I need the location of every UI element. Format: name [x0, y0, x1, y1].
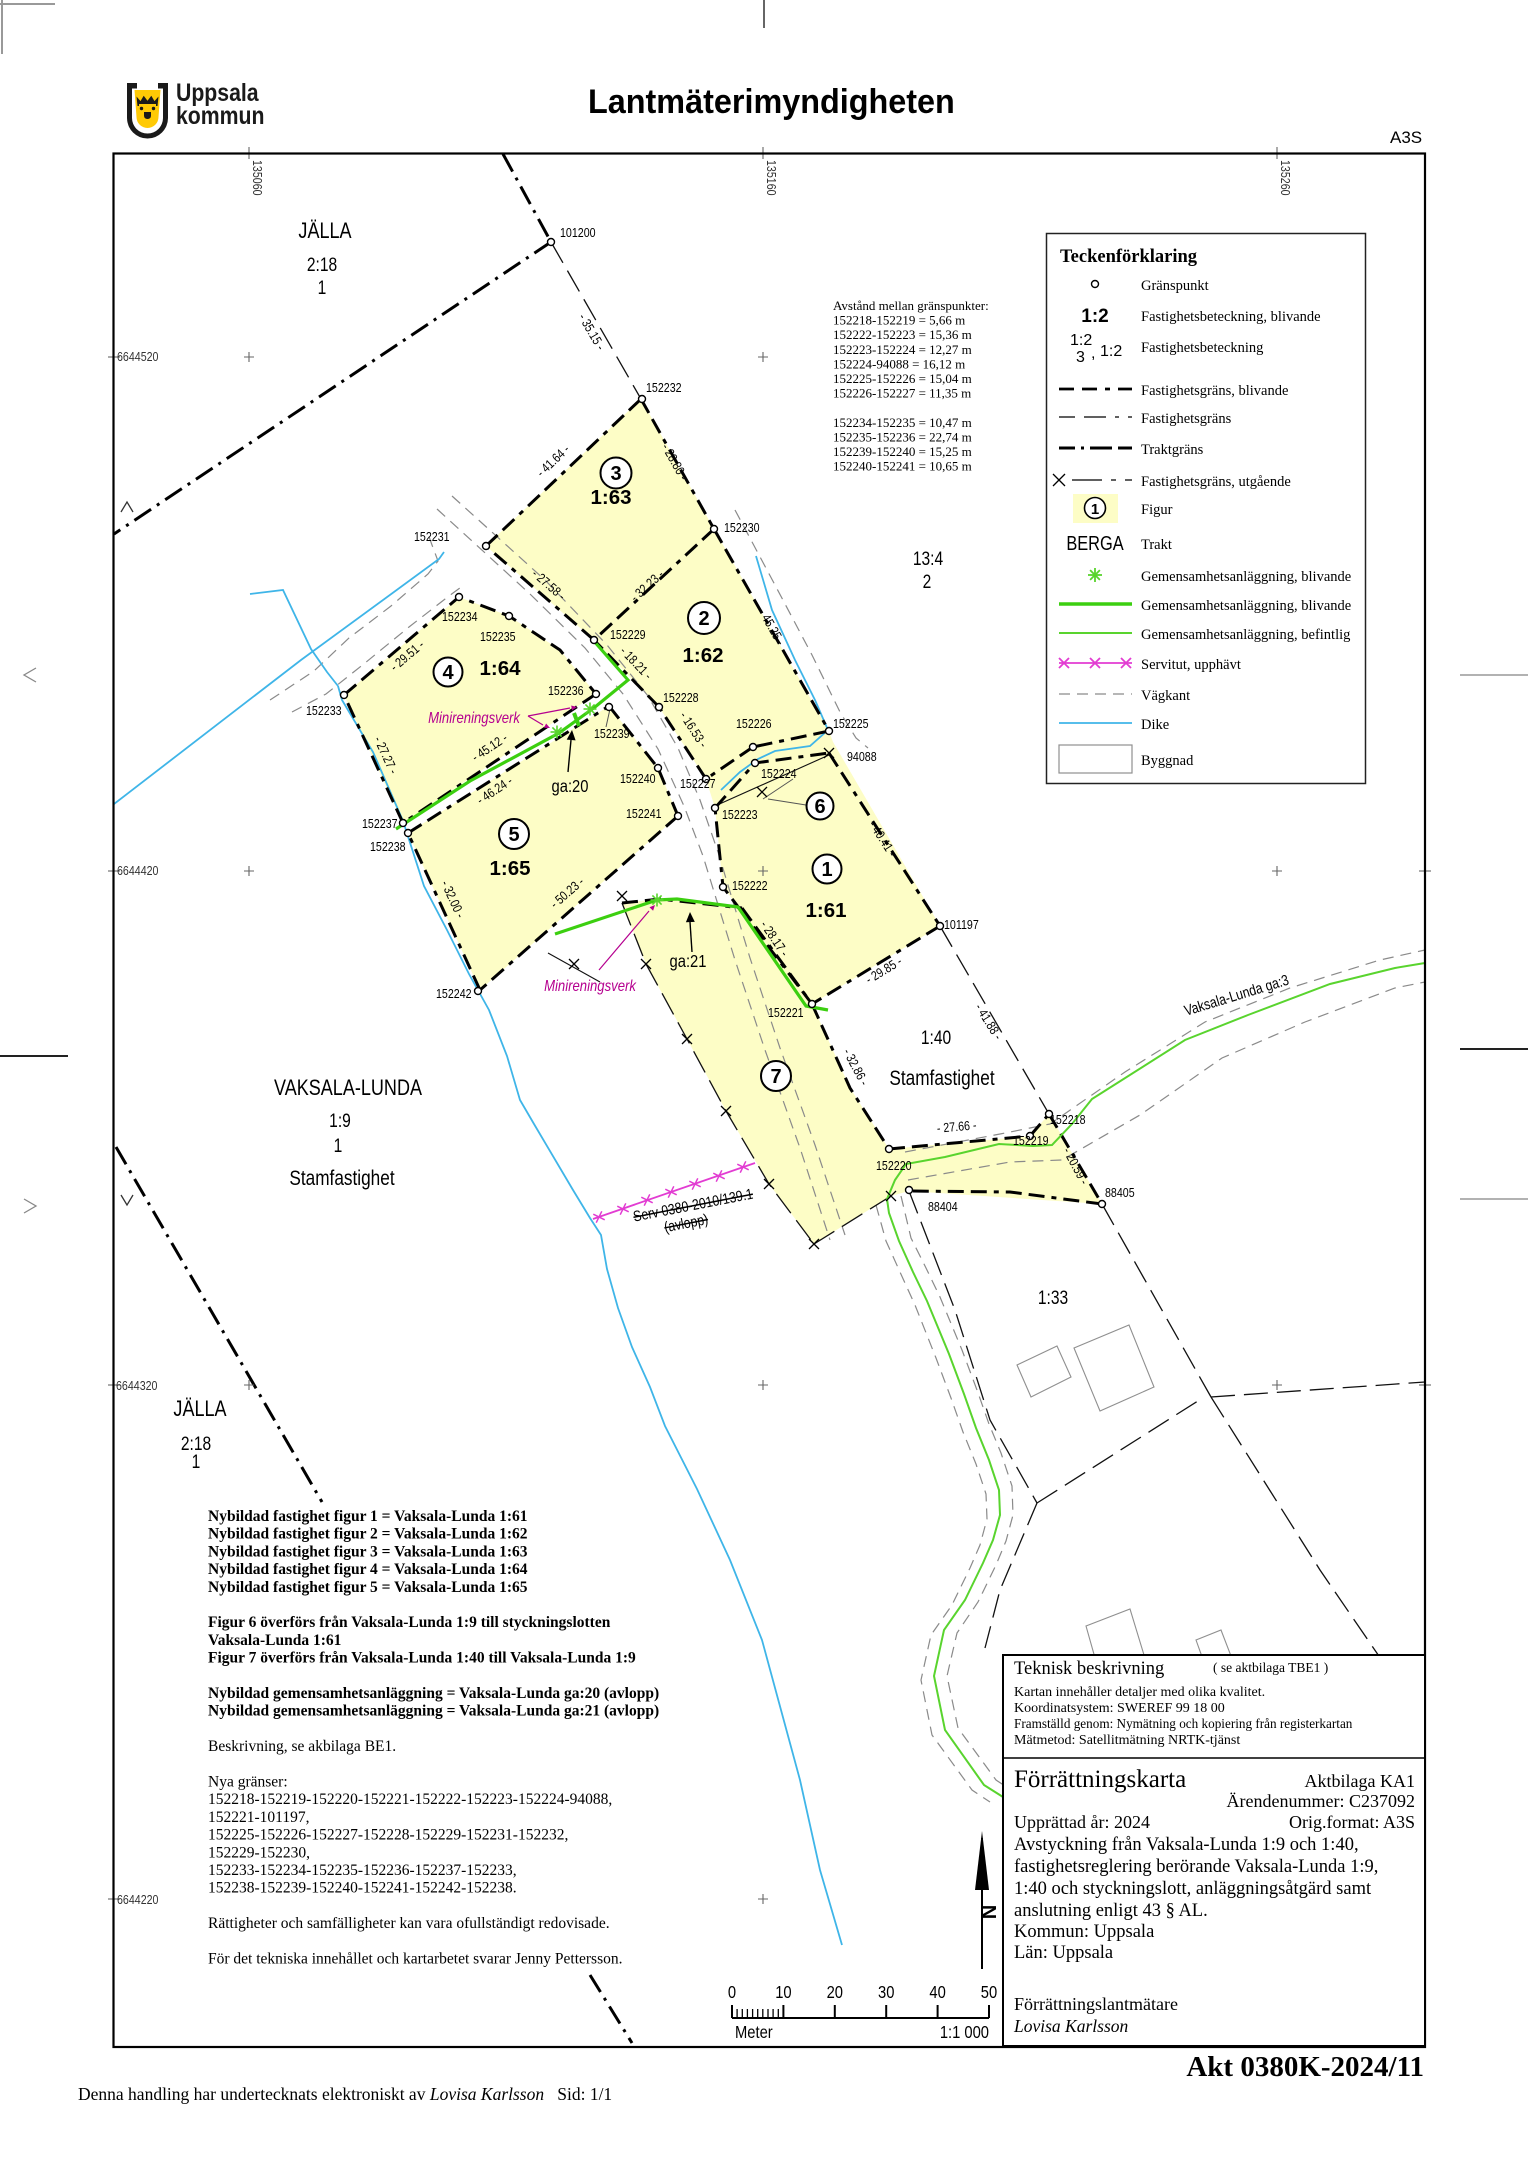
svg-text:88404: 88404	[928, 1199, 958, 1214]
svg-text:Gemensamhetsanläggning, befint: Gemensamhetsanläggning, befintlig	[1141, 627, 1350, 643]
svg-text:101200: 101200	[560, 225, 596, 240]
svg-text:anslutning enligt 43 § AL.: anslutning enligt 43 § AL.	[1014, 1901, 1208, 1921]
svg-text:135160: 135160	[764, 160, 779, 196]
svg-text:2: 2	[698, 608, 709, 630]
svg-text:152221-101197,: 152221-101197,	[208, 1809, 309, 1826]
svg-text:JÄLLA: JÄLLA	[298, 219, 352, 243]
svg-text:1:62: 1:62	[682, 644, 723, 667]
svg-text:Fastighetsbeteckning, blivande: Fastighetsbeteckning, blivande	[1141, 309, 1321, 325]
svg-text:Fastighetsgräns: Fastighetsgräns	[1141, 411, 1232, 427]
svg-text:1:2: 1:2	[1100, 343, 1122, 360]
svg-text:152227: 152227	[680, 776, 716, 791]
svg-text:5: 5	[508, 824, 519, 846]
svg-text:Gränspunkt: Gränspunkt	[1141, 278, 1209, 294]
svg-text:1: 1	[821, 859, 832, 881]
svg-text:152236: 152236	[548, 683, 584, 698]
svg-text:4: 4	[442, 662, 454, 684]
svg-text:1:40: 1:40	[921, 1027, 951, 1049]
svg-text:152238-152239-152240-152241-15: 152238-152239-152240-152241-152242-15223…	[208, 1880, 517, 1897]
svg-text:88405: 88405	[1105, 1185, 1135, 1200]
svg-text:Upprättad år: 2024: Upprättad år: 2024	[1014, 1812, 1150, 1832]
svg-text:Dike: Dike	[1141, 717, 1169, 733]
svg-text:Orig.format: A3S: Orig.format: A3S	[1289, 1812, 1415, 1832]
svg-text:13:4: 13:4	[913, 548, 944, 570]
svg-text:152234-152235 = 10,47 m: 152234-152235 = 10,47 m	[833, 415, 972, 430]
svg-text:Beskrivning, se akbilaga BE1.: Beskrivning, se akbilaga BE1.	[208, 1738, 396, 1755]
svg-text:152235: 152235	[480, 629, 516, 644]
svg-text:152222-152223 = 15,36 m: 152222-152223 = 15,36 m	[833, 327, 972, 342]
svg-text:Vaksala-Lunda ga:3: Vaksala-Lunda ga:3	[1182, 972, 1291, 1019]
svg-text:135060: 135060	[250, 160, 265, 196]
svg-text:152230: 152230	[724, 520, 760, 535]
svg-text:Servitut, upphävt: Servitut, upphävt	[1141, 657, 1241, 673]
svg-text:152218-152219-152220-152221-15: 152218-152219-152220-152221-152222-15222…	[208, 1791, 612, 1808]
svg-text:Kommun: Uppsala: Kommun: Uppsala	[1014, 1922, 1154, 1942]
svg-text:Avstånd mellan gränspunkter:: Avstånd mellan gränspunkter:	[833, 298, 989, 313]
svg-text:152238: 152238	[370, 839, 406, 854]
svg-text:152231: 152231	[414, 529, 450, 544]
svg-text:Denna handling har underteckna: Denna handling har undertecknats elektro…	[78, 2084, 612, 2104]
svg-text:152240-152241 = 10,65 m: 152240-152241 = 10,65 m	[833, 459, 972, 474]
svg-text:20: 20	[827, 1983, 843, 2003]
svg-text:152237: 152237	[362, 816, 398, 831]
svg-text:ga:21: ga:21	[670, 952, 707, 972]
svg-text:1: 1	[334, 1135, 343, 1157]
svg-text:152225: 152225	[833, 716, 869, 731]
svg-text:1:64: 1:64	[479, 657, 521, 680]
svg-text:152223-152224 = 12,27 m: 152223-152224 = 12,27 m	[833, 342, 972, 357]
svg-text:6644420: 6644420	[117, 863, 159, 878]
svg-text:152225-152226-152227-152228-15: 152225-152226-152227-152228-152229-15223…	[208, 1827, 568, 1844]
svg-text:152220: 152220	[876, 1158, 912, 1173]
svg-text:fastighetsreglering berörande: fastighetsreglering berörande Vaksala-Lu…	[1014, 1857, 1378, 1877]
svg-text:152222: 152222	[732, 878, 768, 893]
svg-text:Vägkant: Vägkant	[1141, 688, 1190, 704]
svg-text:1:1 000: 1:1 000	[940, 2023, 989, 2043]
svg-text:Nybildad gemensamhetsanläggnin: Nybildad gemensamhetsanläggning = Vaksal…	[208, 1703, 659, 1720]
svg-text:1:40 och styckningslott, anläg: 1:40 och styckningslott, anläggningsåtgä…	[1014, 1879, 1372, 1899]
svg-text:6644520: 6644520	[117, 349, 159, 364]
svg-text:6644320: 6644320	[116, 1378, 158, 1393]
svg-text:BERGA: BERGA	[1066, 531, 1124, 554]
svg-text:Gemensamhetsanläggning, blivan: Gemensamhetsanläggning, blivande	[1141, 598, 1351, 614]
svg-text:94088: 94088	[847, 749, 877, 764]
svg-text:Stamfastighet: Stamfastighet	[889, 1068, 995, 1091]
svg-text:N: N	[977, 1905, 999, 1919]
svg-text:1:33: 1:33	[1038, 1287, 1068, 1309]
svg-text:A3S: A3S	[1390, 128, 1422, 147]
svg-text:Traktgräns: Traktgräns	[1141, 442, 1204, 458]
svg-text:Meter: Meter	[735, 2023, 773, 2043]
svg-text:kommun: kommun	[176, 101, 265, 129]
svg-text:152219: 152219	[1013, 1133, 1049, 1148]
svg-text:10: 10	[775, 1983, 791, 2003]
svg-text:40: 40	[929, 1983, 945, 2003]
svg-text:1: 1	[1091, 501, 1099, 518]
svg-text:Mätmetod: Satellitmätning NRTK: Mätmetod: Satellitmätning NRTK-tjänst	[1014, 1733, 1240, 1748]
svg-text:152234: 152234	[442, 609, 478, 624]
svg-text:- 41.88 -: - 41.88 -	[972, 1001, 1006, 1043]
svg-text:3: 3	[610, 463, 621, 485]
svg-text:Nybildad fastighet figur 2 = V: Nybildad fastighet figur 2 = Vaksala-Lun…	[208, 1526, 528, 1543]
svg-text:6: 6	[814, 796, 825, 818]
svg-text:Nybildad fastighet figur 3 = V: Nybildad fastighet figur 3 = Vaksala-Lun…	[208, 1543, 528, 1560]
svg-text:152235-152236 = 22,74 m: 152235-152236 = 22,74 m	[833, 429, 972, 444]
svg-text:Gemensamhetsanläggning, blivan: Gemensamhetsanläggning, blivande	[1141, 569, 1351, 585]
svg-text:Ärendenummer: C237092: Ärendenummer: C237092	[1227, 1791, 1415, 1811]
svg-text:Figur: Figur	[1141, 502, 1173, 518]
svg-text:1:9: 1:9	[329, 1110, 351, 1132]
svg-text:Aktbilaga KA1: Aktbilaga KA1	[1305, 1771, 1415, 1791]
svg-text:ga:20: ga:20	[552, 777, 589, 797]
svg-text:Lovisa Karlsson: Lovisa Karlsson	[1013, 2016, 1129, 2036]
svg-text:152239-152240 = 15,25 m: 152239-152240 = 15,25 m	[833, 444, 972, 459]
svg-text:152241: 152241	[626, 806, 662, 821]
svg-text:Avstyckning från Vaksala-Lunda: Avstyckning från Vaksala-Lunda 1:9 och 1…	[1014, 1835, 1359, 1855]
svg-text:Förrättningskarta: Förrättningskarta	[1014, 1766, 1186, 1793]
svg-text:152223: 152223	[722, 807, 758, 822]
svg-text:Figur 6 överförs från Vaksala-: Figur 6 överförs från Vaksala-Lunda 1:9 …	[208, 1614, 611, 1631]
svg-text:50: 50	[981, 1983, 997, 2003]
svg-text:Fastighetsgräns, blivande: Fastighetsgräns, blivande	[1141, 383, 1288, 399]
svg-text:101197: 101197	[944, 917, 979, 932]
svg-text:Minireningsverk: Minireningsverk	[544, 978, 636, 995]
svg-text:Trakt: Trakt	[1141, 537, 1172, 553]
svg-text:152240: 152240	[620, 771, 656, 786]
svg-text:6644220: 6644220	[117, 1892, 159, 1907]
svg-text:1:61: 1:61	[805, 899, 846, 922]
svg-text:- 27.66 -: - 27.66 -	[936, 1117, 977, 1136]
svg-text:152226-152227 = 11,35 m: 152226-152227 = 11,35 m	[833, 386, 971, 401]
svg-text:Nybildad fastighet figur 1 = V: Nybildad fastighet figur 1 = Vaksala-Lun…	[208, 1508, 527, 1525]
svg-text:Vaksala-Lunda 1:61: Vaksala-Lunda 1:61	[208, 1632, 341, 1649]
svg-text:152226: 152226	[736, 716, 772, 731]
svg-text:Stamfastighet: Stamfastighet	[289, 1168, 395, 1191]
svg-text:Nya gränser:: Nya gränser:	[208, 1774, 288, 1791]
svg-text:Figur 7 överförs från Vaksala-: Figur 7 överförs från Vaksala-Lunda 1:40…	[208, 1650, 636, 1667]
svg-text:VAKSALA-LUNDA: VAKSALA-LUNDA	[274, 1076, 423, 1100]
svg-text:152228: 152228	[663, 690, 699, 705]
svg-text:Koordinatsystem: SWEREF 99 18: Koordinatsystem: SWEREF 99 18 00	[1014, 1701, 1225, 1716]
svg-text:152233: 152233	[306, 703, 342, 718]
svg-text:152218: 152218	[1050, 1112, 1086, 1127]
svg-text:Teckenförklaring: Teckenförklaring	[1060, 247, 1198, 267]
svg-text:152232: 152232	[646, 380, 682, 395]
svg-text:Nybildad fastighet figur 4 = V: Nybildad fastighet figur 4 = Vaksala-Lun…	[208, 1561, 528, 1578]
svg-text:Teknisk beskrivning: Teknisk beskrivning	[1014, 1659, 1164, 1679]
svg-text:Nybildad gemensamhetsanläggnin: Nybildad gemensamhetsanläggning = Vaksal…	[208, 1685, 659, 1702]
svg-text:2: 2	[923, 571, 932, 593]
svg-text:( se aktbilaga TBE1 ): ( se aktbilaga TBE1 )	[1213, 1660, 1328, 1675]
svg-text:152242: 152242	[436, 986, 472, 1001]
svg-text:Fastighetsgräns, utgående: Fastighetsgräns, utgående	[1141, 474, 1291, 490]
svg-text:152229-152230,: 152229-152230,	[208, 1844, 310, 1861]
svg-text:1:63: 1:63	[590, 486, 631, 509]
svg-text:0: 0	[728, 1983, 736, 2003]
svg-text:Kartan innehåller detaljer med: Kartan innehåller detaljer med olika kva…	[1014, 1685, 1265, 1700]
svg-text:152233-152234-152235-152236-15: 152233-152234-152235-152236-152237-15223…	[208, 1862, 517, 1879]
svg-text:1:2: 1:2	[1070, 332, 1092, 349]
svg-text:1:2: 1:2	[1081, 306, 1108, 327]
svg-text:Lantmäterimyndigheten: Lantmäterimyndigheten	[588, 83, 955, 121]
svg-text:Byggnad: Byggnad	[1141, 753, 1194, 769]
svg-text:Akt 0380K-2024/11: Akt 0380K-2024/11	[1186, 2051, 1424, 2083]
svg-text:Nybildad fastighet figur 5 = V: Nybildad fastighet figur 5 = Vaksala-Lun…	[208, 1579, 528, 1596]
svg-text:152239: 152239	[594, 726, 630, 741]
svg-text:135260: 135260	[1278, 160, 1293, 196]
svg-text:152218-152219 = 5,66 m: 152218-152219 = 5,66 m	[833, 313, 965, 328]
svg-text:7: 7	[770, 1066, 781, 1088]
svg-text:3: 3	[1076, 349, 1085, 366]
svg-text:Framställd genom: Nymätning oc: Framställd genom: Nymätning och kopierin…	[1014, 1716, 1353, 1731]
svg-text:Förrättningslantmätare: Förrättningslantmätare	[1014, 1994, 1178, 2014]
svg-text:1: 1	[192, 1451, 201, 1473]
svg-text:Rättigheter och samfälligheter: Rättigheter och samfälligheter kan vara …	[208, 1915, 610, 1932]
svg-text:152229: 152229	[610, 627, 646, 642]
svg-text:,: ,	[1091, 345, 1095, 362]
svg-text:Minireningsverk: Minireningsverk	[428, 710, 520, 727]
svg-text:För det tekniska innehållet oc: För det tekniska innehållet och kartarbe…	[208, 1951, 623, 1968]
svg-text:30: 30	[878, 1983, 894, 2003]
svg-text:- 35.15 -: - 35.15 -	[575, 311, 608, 353]
svg-text:1:65: 1:65	[489, 857, 530, 880]
svg-text:152225-152226 = 15,04 m: 152225-152226 = 15,04 m	[833, 371, 972, 386]
svg-text:2:18: 2:18	[307, 254, 337, 276]
svg-text:152224: 152224	[761, 766, 797, 781]
svg-text:1: 1	[318, 277, 327, 299]
svg-text:Fastighetsbeteckning: Fastighetsbeteckning	[1141, 340, 1263, 356]
svg-text:152221: 152221	[768, 1005, 804, 1020]
svg-text:JÄLLA: JÄLLA	[173, 1397, 227, 1421]
svg-text:152224-94088 = 16,12 m: 152224-94088 = 16,12 m	[833, 356, 965, 371]
svg-text:Län: Uppsala: Län: Uppsala	[1014, 1943, 1113, 1963]
